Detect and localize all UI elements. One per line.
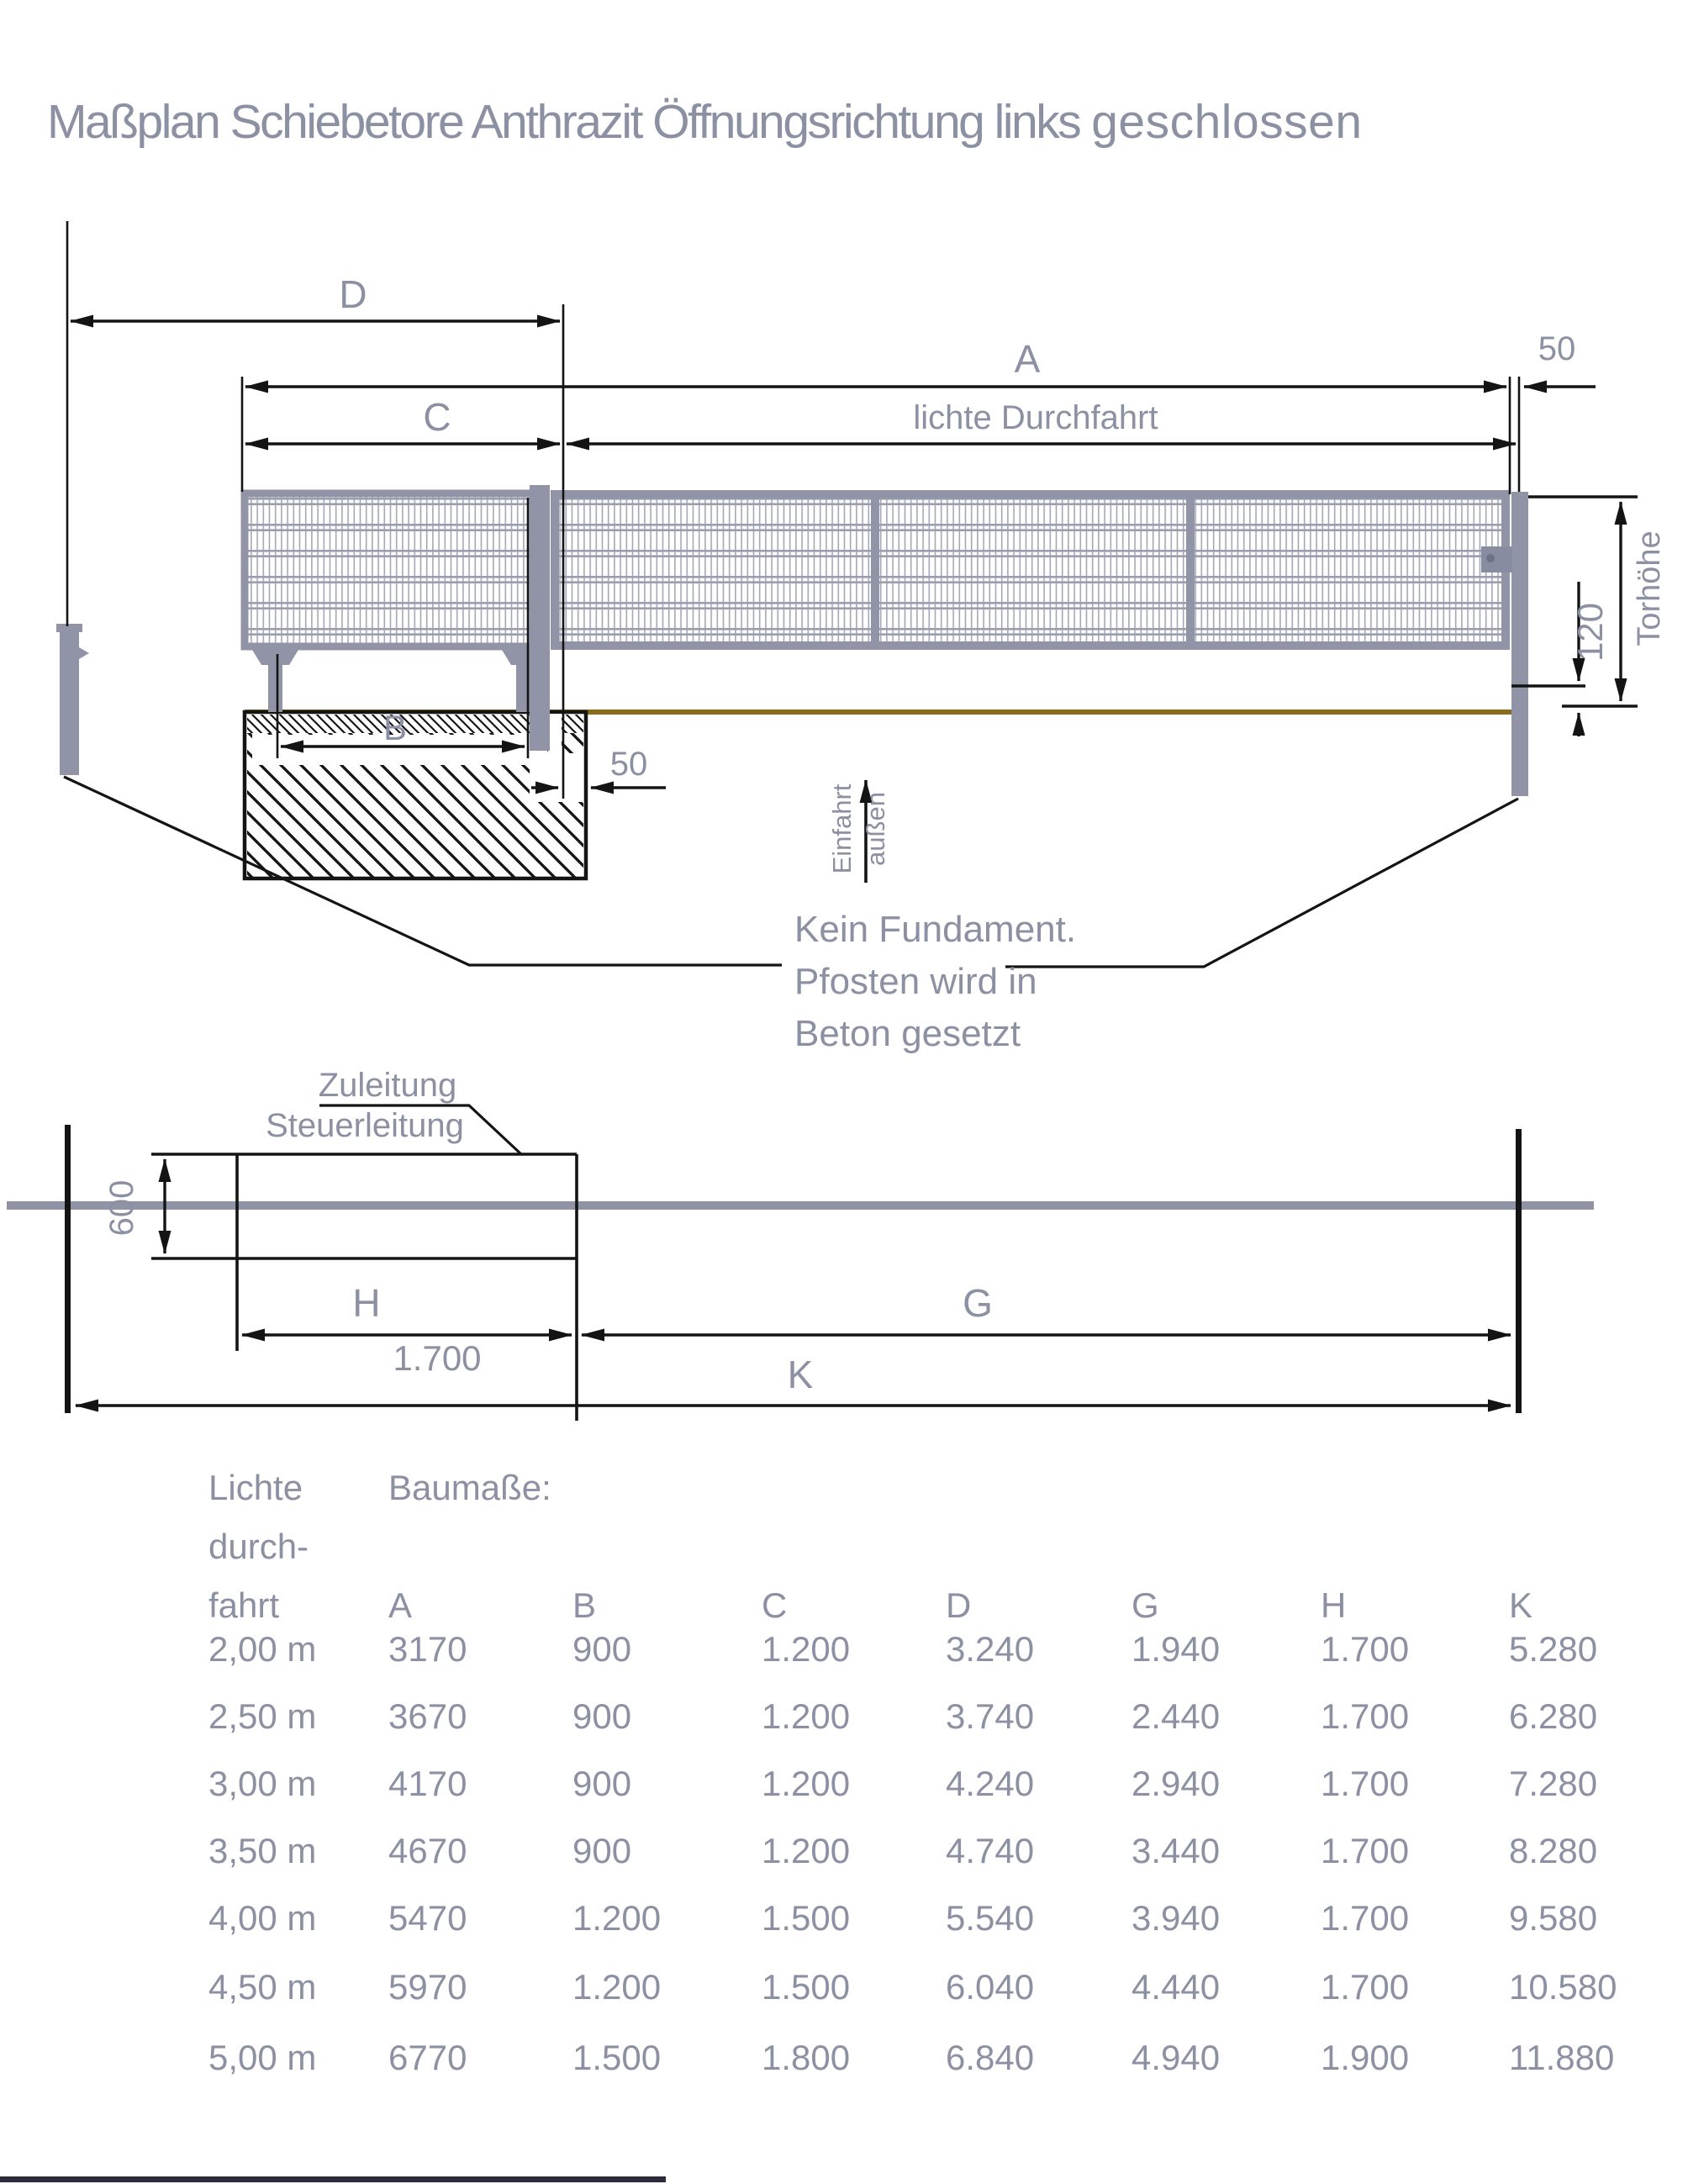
dim-label-gate-height: Torhöhe — [1632, 530, 1667, 646]
col-header-a: A — [388, 1585, 412, 1626]
row-k: 11.880 — [1509, 2038, 1614, 2078]
outside-label: außen — [861, 792, 890, 866]
row-c: 1.200 — [762, 1764, 850, 1804]
col1-header-line2: durch- — [208, 1527, 309, 1567]
row-d: 6.840 — [946, 2038, 1034, 2078]
note-line-2: Pfosten wird in — [794, 961, 1037, 1002]
latch-keyhole — [1486, 554, 1495, 562]
table-row: 2,00 m 3170 900 1.200 3.240 1.940 1.700 … — [0, 1629, 1688, 1681]
row-size: 3,50 m — [208, 1831, 316, 1871]
row-h: 1.700 — [1321, 1629, 1409, 1670]
row-g: 3.940 — [1131, 1898, 1220, 1939]
row-c: 1.200 — [762, 1696, 850, 1737]
table-row: 2,50 m 3670 900 1.200 3.740 2.440 1.700 … — [0, 1696, 1688, 1749]
gate-divider-2 — [1186, 499, 1195, 641]
row-h: 1.700 — [1321, 1764, 1409, 1804]
row-b: 900 — [572, 1696, 631, 1737]
dim-value-h: 1.700 — [393, 1338, 481, 1378]
col1-header-line3: fahrt — [208, 1585, 279, 1626]
row-c: 1.500 — [762, 1898, 850, 1939]
left-end-post — [56, 624, 89, 775]
col-header-g: G — [1131, 1585, 1159, 1626]
drive-in-label: Einfahrt — [827, 783, 857, 873]
dim-label-c: C — [423, 395, 451, 439]
row-d: 4.240 — [946, 1764, 1034, 1804]
elevation-view: D A 50 C lichte Durchfahrt Torhöhe — [56, 221, 1667, 1054]
dim-gate-height: Torhöhe — [1528, 497, 1667, 706]
row-b: 1.500 — [572, 2038, 661, 2078]
foundation-note: Kein Fundament. Pfosten wird in Beton ge… — [794, 909, 1076, 1054]
panel-foot-left — [252, 650, 298, 665]
note-leader-right — [1005, 799, 1518, 967]
gate-divider-1 — [871, 499, 879, 641]
row-h: 1.700 — [1321, 1967, 1409, 2007]
plan-view: Zuleitung Steuerleitung 600 H 1.700 G K — [7, 1067, 1594, 1421]
row-b: 900 — [572, 1629, 631, 1670]
row-d: 3.740 — [946, 1696, 1034, 1737]
gate-latch — [1481, 546, 1512, 572]
table-row: 4,00 m 5470 1.200 1.500 5.540 3.940 1.70… — [0, 1898, 1688, 1950]
row-h: 1.700 — [1321, 1696, 1409, 1737]
table-row: 3,50 m 4670 900 1.200 4.740 3.440 1.700 … — [0, 1831, 1688, 1883]
row-h: 1.700 — [1321, 1898, 1409, 1939]
row-d: 4.740 — [946, 1831, 1034, 1871]
right-post-plan — [1516, 1129, 1522, 1413]
col1-header-line1: Lichte — [208, 1468, 303, 1508]
row-size: 4,00 m — [208, 1898, 316, 1939]
table-header-row-2: durch- — [0, 1527, 1688, 1579]
row-k: 7.280 — [1509, 1764, 1597, 1804]
dims-header: Baumaße: — [388, 1468, 551, 1508]
control-line-label: Steuerleitung — [266, 1107, 464, 1144]
dim-label-b: B — [383, 708, 407, 747]
row-a: 5470 — [388, 1898, 467, 1939]
sliding-gate-leaf — [555, 494, 1506, 646]
row-a: 5970 — [388, 1967, 467, 2007]
fence-line-plan — [7, 1201, 1594, 1210]
row-k: 6.280 — [1509, 1696, 1597, 1737]
row-b: 900 — [572, 1831, 631, 1871]
table-row: 4,50 m 5970 1.200 1.500 6.040 4.440 1.70… — [0, 1967, 1688, 2019]
fence-panel — [245, 493, 535, 646]
col-header-c: C — [762, 1585, 787, 1626]
row-c: 1.500 — [762, 1967, 850, 2007]
row-d: 5.540 — [946, 1898, 1034, 1939]
col-header-h: H — [1321, 1585, 1346, 1626]
note-line-3: Beton gesetzt — [794, 1013, 1021, 1054]
supply-line-label: Zuleitung — [319, 1067, 457, 1104]
note-line-1: Kein Fundament. — [794, 909, 1076, 950]
fence-panel-mesh — [248, 497, 531, 643]
page-bottom-edge — [0, 2176, 666, 2182]
row-a: 3170 — [388, 1629, 467, 1670]
dim-label-a: A — [1015, 337, 1041, 381]
receiving-post — [1511, 492, 1528, 796]
row-d: 3.240 — [946, 1629, 1034, 1670]
row-size: 2,50 m — [208, 1696, 316, 1737]
table-row: 3,00 m 4170 900 1.200 4.240 2.940 1.700 … — [0, 1764, 1688, 1816]
dim-label-ground-clearance: 120 — [1570, 603, 1610, 662]
row-d: 6.040 — [946, 1967, 1034, 2007]
row-a: 3670 — [388, 1696, 467, 1737]
row-a: 4170 — [388, 1764, 467, 1804]
row-size: 4,50 m — [208, 1967, 316, 2007]
dim-label-clear-passage: lichte Durchfahrt — [913, 399, 1158, 436]
row-b: 1.200 — [572, 1967, 661, 2007]
row-size: 5,00 m — [208, 2038, 316, 2078]
col-header-b: B — [572, 1585, 596, 1626]
guide-post — [530, 485, 550, 751]
row-b: 900 — [572, 1764, 631, 1804]
col-header-d: D — [946, 1585, 971, 1626]
row-g: 2.440 — [1131, 1696, 1220, 1737]
row-a: 4670 — [388, 1831, 467, 1871]
table-header-row-1: Lichte Baumaße: — [0, 1468, 1688, 1520]
row-k: 5.280 — [1509, 1629, 1597, 1670]
row-size: 2,00 m — [208, 1629, 316, 1670]
dim-label-d: D — [339, 272, 367, 316]
left-post-hook — [79, 647, 89, 659]
row-c: 1.200 — [762, 1831, 850, 1871]
dim-label-600: 600 — [103, 1180, 140, 1237]
dim-label-h: H — [352, 1281, 380, 1325]
massplan-page: Maßplan Schiebetore Anthrazit Öffnungsri… — [0, 0, 1688, 2184]
row-c: 1.200 — [762, 1629, 850, 1670]
row-h: 1.900 — [1321, 2038, 1409, 2078]
row-g: 1.940 — [1131, 1629, 1220, 1670]
col-header-k: K — [1509, 1585, 1532, 1626]
dim-label-foundation-gap: 50 — [610, 746, 648, 783]
row-a: 6770 — [388, 2038, 467, 2078]
dim-label-k: K — [788, 1353, 814, 1396]
row-h: 1.700 — [1321, 1831, 1409, 1871]
row-g: 4.940 — [1131, 2038, 1220, 2078]
row-k: 8.280 — [1509, 1831, 1597, 1871]
dim-label-post-gap: 50 — [1538, 330, 1576, 367]
panel-feet — [252, 650, 546, 712]
row-b: 1.200 — [572, 1898, 661, 1939]
row-g: 4.440 — [1131, 1967, 1220, 2007]
dim-label-g: G — [963, 1281, 993, 1325]
left-post-plan — [65, 1125, 71, 1413]
row-k: 9.580 — [1509, 1898, 1597, 1939]
row-c: 1.800 — [762, 2038, 850, 2078]
row-g: 3.440 — [1131, 1831, 1220, 1871]
table-row: 5,00 m 6770 1.500 1.800 6.840 4.940 1.90… — [0, 2038, 1688, 2090]
row-size: 3,00 m — [208, 1764, 316, 1804]
row-g: 2.940 — [1131, 1764, 1220, 1804]
gate-leaf-mesh — [558, 499, 1501, 641]
row-k: 10.580 — [1509, 1967, 1617, 2007]
drive-in-direction: Einfahrt außen — [827, 780, 890, 883]
